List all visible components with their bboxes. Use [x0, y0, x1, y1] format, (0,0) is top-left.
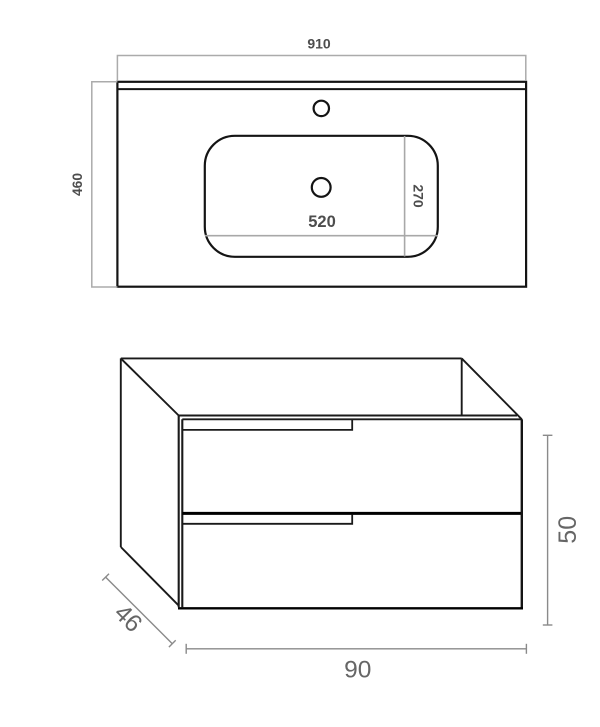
svg-text:270: 270 — [411, 184, 427, 208]
svg-text:460: 460 — [70, 173, 85, 196]
svg-text:90: 90 — [344, 656, 371, 683]
svg-text:520: 520 — [308, 213, 336, 231]
svg-text:910: 910 — [307, 36, 331, 52]
svg-text:50: 50 — [554, 516, 582, 544]
